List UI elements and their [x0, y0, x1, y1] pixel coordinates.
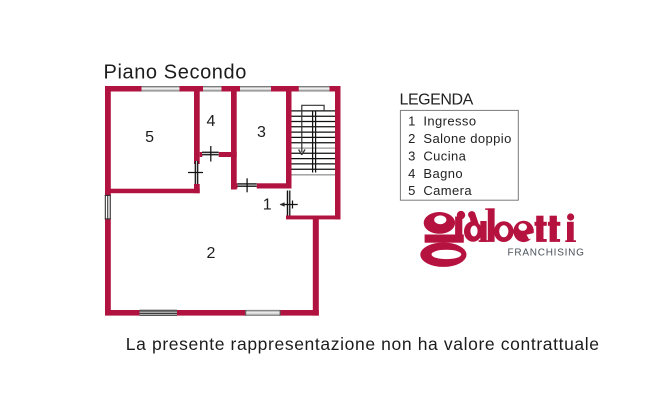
svg-text:FRANCHISING: FRANCHISING [508, 247, 585, 258]
svg-text:4: 4 [408, 166, 415, 181]
svg-text:2: 2 [408, 131, 415, 146]
svg-text:3: 3 [408, 148, 415, 163]
svg-text:1: 1 [263, 197, 272, 214]
svg-text:Cucina: Cucina [423, 148, 466, 163]
svg-text:5: 5 [408, 183, 415, 198]
svg-text:2: 2 [207, 245, 216, 262]
svg-text:LEGENDA: LEGENDA [400, 92, 474, 109]
svg-text:Salone doppio: Salone doppio [423, 131, 511, 146]
svg-text:4: 4 [206, 113, 215, 130]
svg-text:Camera: Camera [423, 183, 472, 198]
svg-text:Piano Secondo: Piano Secondo [104, 62, 247, 84]
svg-text:1: 1 [408, 113, 415, 128]
svg-text:3: 3 [257, 124, 266, 141]
svg-text:La presente rappresentazione n: La presente rappresentazione non ha valo… [126, 334, 600, 354]
svg-text:Bagno: Bagno [423, 166, 463, 181]
svg-text:5: 5 [145, 129, 154, 146]
svg-text:Ingresso: Ingresso [423, 113, 476, 128]
